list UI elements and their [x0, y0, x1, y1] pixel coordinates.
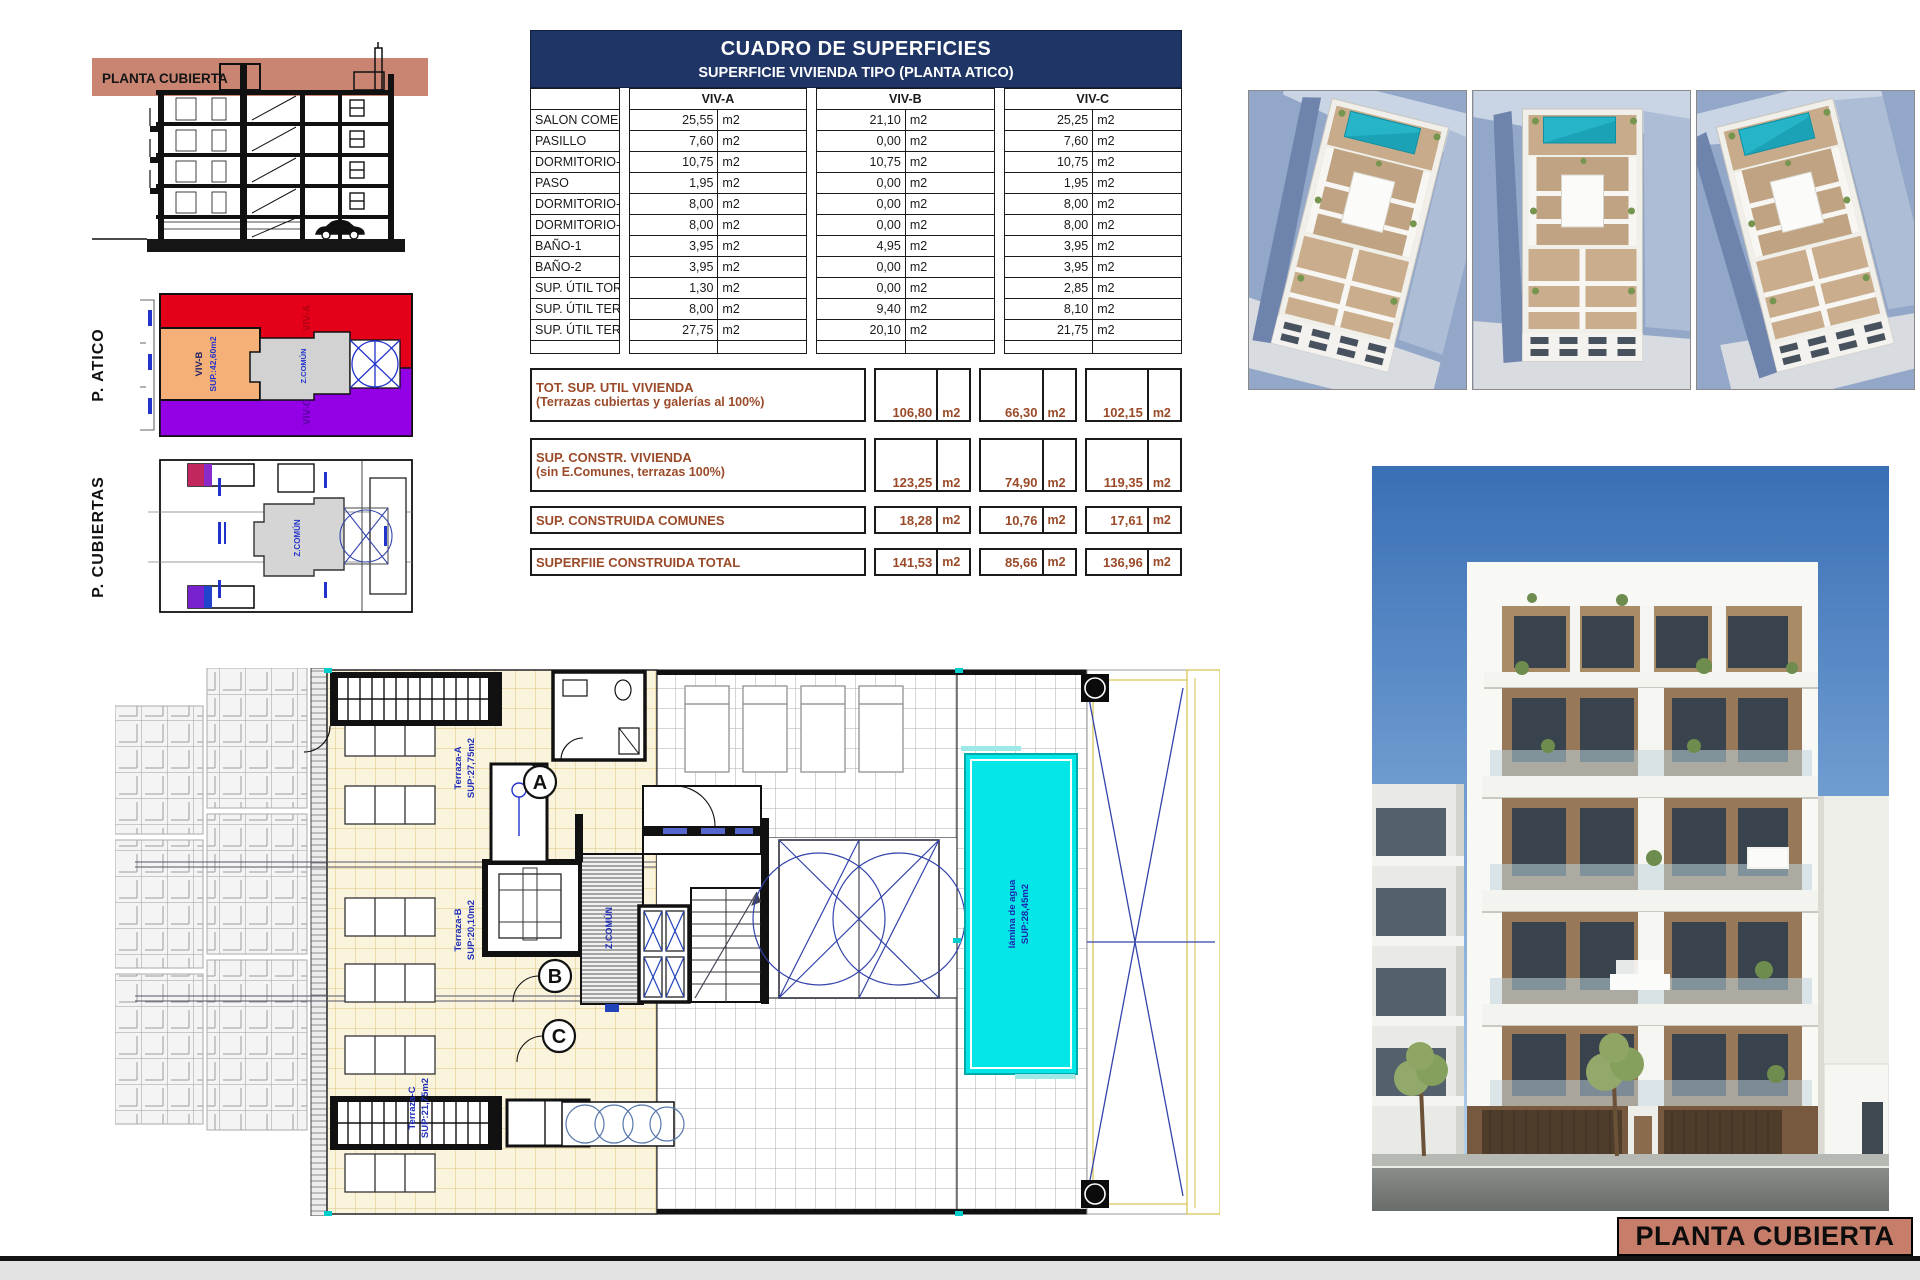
col-viv-b: VIV-B: [817, 89, 994, 110]
table-title-bar: CUADRO DE SUPERFICIES SUPERFICIE VIVIEND…: [530, 30, 1182, 88]
svg-text:Terraza-B: Terraza-B: [453, 908, 464, 951]
structural-x-zone: [1081, 670, 1220, 1214]
svg-text:SUP:21,75m2: SUP:21,75m2: [420, 1078, 431, 1138]
bottom-rooms: [507, 1100, 684, 1146]
p-atico-label: P. ATICO: [84, 292, 114, 437]
zona-comun-label: Z.COMÚN: [603, 907, 614, 949]
table-row: SALON COMEDOR COCINA 25,55m2 21,10m2 25,…: [531, 110, 1182, 131]
roof-floor-plan: Z.COMÚN A B C: [115, 668, 1220, 1216]
badge-c: C: [552, 1026, 566, 1048]
aerial-render-1: [1248, 90, 1467, 390]
pool-label-1: lámina de agua: [1007, 879, 1018, 948]
floor-2: [1482, 798, 1818, 912]
p-atico-plan: VIV-A VIV-B SUP.:42,60m2 VIV-C Z.COMÚN: [118, 290, 418, 440]
terrace-tiles-gray-bottom: [657, 998, 957, 1214]
aerial-render-2: [1472, 90, 1691, 390]
elevator-icon: [350, 340, 400, 388]
building-section-drawing: PLANTA CUBIERTA: [92, 34, 428, 266]
viv-b-sup-label: SUP.:42,60m2: [208, 336, 218, 391]
viv-b-label: VIV-B: [194, 351, 205, 376]
table-title: CUADRO DE SUPERFICIES: [531, 38, 1181, 61]
floor-4: [1490, 1026, 1812, 1106]
total-construida-comunes: SUP. CONSTRUIDA COMUNES 18,28m2 10,76m2 …: [530, 506, 1182, 534]
table-row: DORMITORIO-3 8,00m2 0,00m2 8,00m2: [531, 215, 1182, 236]
surface-grid: VIV-A VIV-B VIV-C SALON COMEDOR COCINA 2…: [530, 88, 1182, 354]
col-viv-a: VIV-A: [629, 89, 806, 110]
table-row: PASO 1,95m2 0,00m2 1,95m2: [531, 173, 1182, 194]
table-row: PASILLO 7,60m2 0,00m2 7,60m2: [531, 131, 1182, 152]
viv-a-label: VIV-A: [302, 305, 313, 331]
svg-text:Terraza-C: Terraza-C: [407, 1086, 418, 1129]
floor-3: [1482, 912, 1818, 1026]
skylights: [753, 840, 965, 998]
svg-text:Terraza-A: Terraza-A: [453, 746, 464, 789]
ground-floor: [1467, 1106, 1818, 1154]
svg-text:SUP:20,10m2: SUP:20,10m2: [466, 900, 477, 960]
floor-1: [1482, 688, 1818, 798]
swimming-pool: lámina de agua SUP:28,45m2: [961, 746, 1077, 1079]
table-row: DORMITORIO-1 10,75m2 10,75m2 10,75m2: [531, 152, 1182, 173]
p-cubiertas-label: P. CUBIERTAS: [84, 452, 114, 622]
table-row: SUP. ÚTIL TERRAZA-1 8,00m2 9,40m2 8,10m2: [531, 299, 1182, 320]
street: [1372, 1154, 1889, 1211]
total-constr-vivienda: SUP. CONSTR. VIVIENDA (sin E.Comunes, te…: [530, 438, 1182, 492]
sheet-title-box: PLANTA CUBIERTA: [1617, 1217, 1913, 1258]
table-row: DORMITORIO-2 8,00m2 0,00m2 8,00m2: [531, 194, 1182, 215]
aerial-render-3: [1696, 90, 1915, 390]
sheet-edge-strip: [0, 1261, 1920, 1280]
zona-comun-label: Z.COMÚN: [293, 519, 302, 557]
svg-text:SUP:27,75m2: SUP:27,75m2: [466, 738, 477, 798]
bathroom-top: [553, 672, 645, 760]
badge-b: B: [548, 966, 562, 988]
band-label: PLANTA CUBIERTA: [102, 71, 228, 86]
table-row: BAÑO-2 3,95m2 0,00m2 3,95m2: [531, 257, 1182, 278]
table-row: SUP. ÚTIL TORREON 1,30m2 0,00m2 2,85m2: [531, 278, 1182, 299]
sheet-title: PLANTA CUBIERTA: [1636, 1221, 1895, 1252]
viv-c-label: VIV-C: [302, 399, 313, 425]
zona-comun-label: Z.COMÚN: [299, 349, 308, 384]
total-util-vivienda: TOT. SUP. UTIL VIVIENDA (Terrazas cubier…: [530, 368, 1182, 422]
spacer-row: [531, 341, 1182, 354]
header-row: VIV-A VIV-B VIV-C: [531, 89, 1182, 110]
table-row: BAÑO-1 3,95m2 4,95m2 3,95m2: [531, 236, 1182, 257]
right-buildings: [1818, 796, 1889, 1156]
table-row: SUP. ÚTIL TERRAZA-2 (cubierta) 27,75m2 2…: [531, 320, 1182, 341]
table-subtitle: SUPERFICIE VIVIENDA TIPO (PLANTA ATICO): [531, 65, 1181, 81]
total-construida-total: SUPERFIIE CONSTRUIDA TOTAL 141,53m2 85,6…: [530, 548, 1182, 576]
neighbor-roofs: [115, 668, 307, 1130]
p-cubiertas-plan: Z.COMÚN: [118, 452, 418, 624]
facade-render: [1372, 466, 1889, 1211]
col-viv-c: VIV-C: [1004, 89, 1181, 110]
pool-label-2: SUP:28,45m2: [1020, 884, 1031, 944]
surface-table: CUADRO DE SUPERFICIES SUPERFICIE VIVIEND…: [530, 30, 1182, 576]
aerial-renders: [1248, 90, 1915, 390]
drawing-sheet: PLANTA CUBIERTA: [0, 0, 1920, 1280]
badge-a: A: [533, 772, 547, 794]
neighbor-building: [1372, 784, 1464, 1156]
